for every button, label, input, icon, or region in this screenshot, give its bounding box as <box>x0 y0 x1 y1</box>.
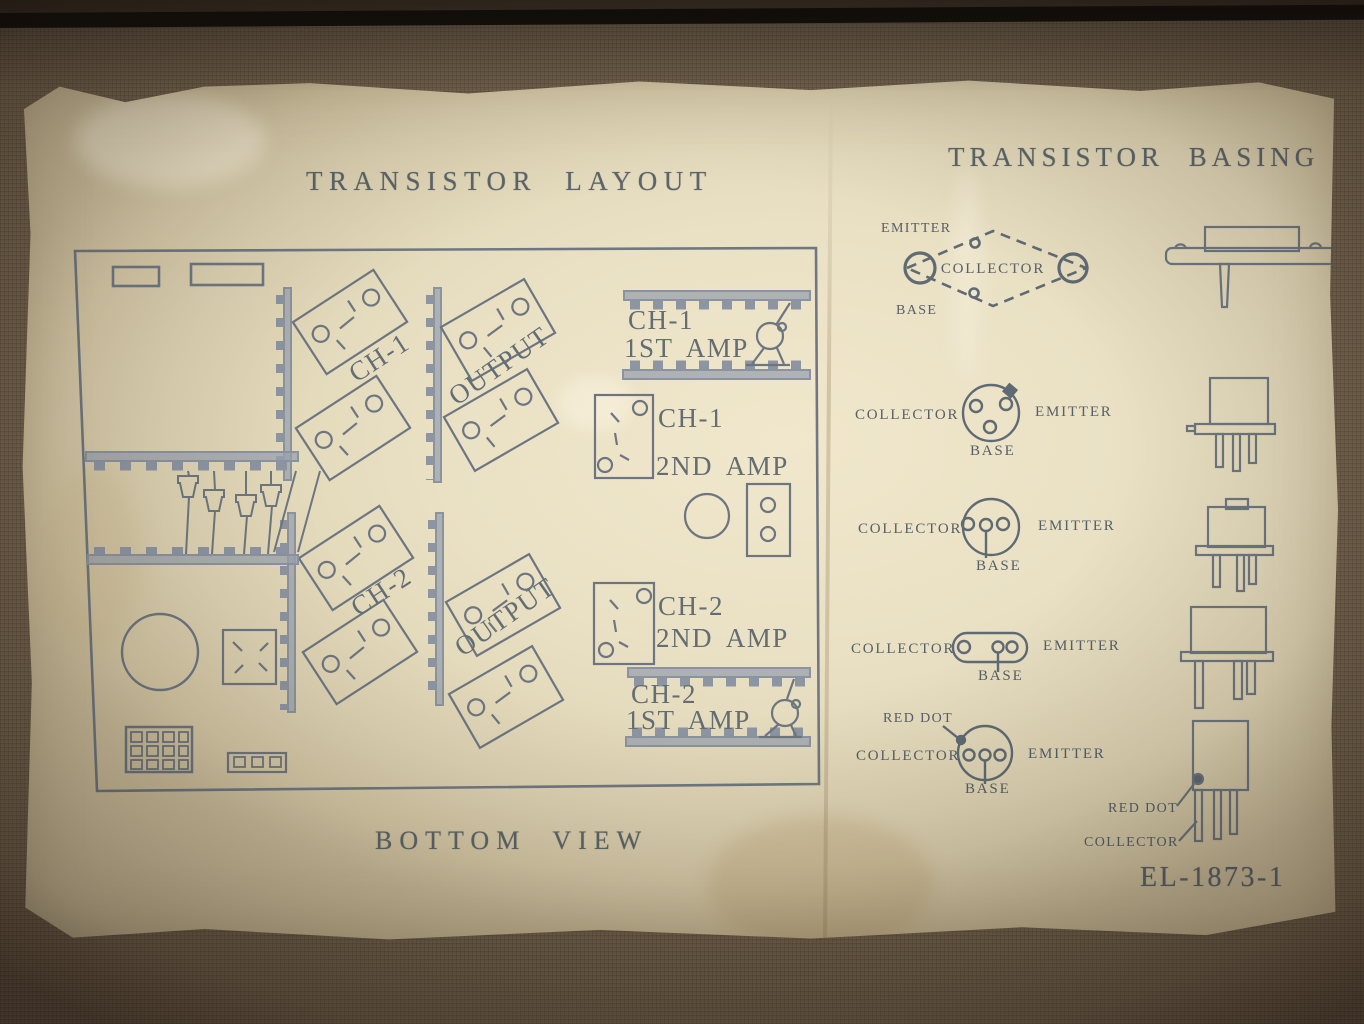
side-view-can-flange <box>1187 378 1275 471</box>
label-ch1-2nd-line2: 2ND AMP <box>656 451 789 481</box>
ch1-1st-amp-transistor <box>746 303 790 365</box>
basing-oval-case <box>953 633 1027 672</box>
label-collector: COLLECTOR <box>855 407 959 423</box>
side-view-can-top-tab <box>1196 499 1273 591</box>
label-base: BASE <box>965 781 1011 797</box>
label-collector: COLLECTOR <box>941 261 1045 277</box>
side-view-power-case <box>1166 227 1336 307</box>
label-collector: COLLECTOR <box>858 521 962 537</box>
basing-round-inline-case <box>962 499 1019 558</box>
paper-stain <box>75 93 265 188</box>
component-strip-lower <box>88 551 298 564</box>
three-hole-strip <box>228 753 286 772</box>
label-red-dot: RED DOT <box>1108 801 1178 816</box>
hole <box>685 494 729 538</box>
paper-stain <box>708 816 933 951</box>
bottom-view-label: BOTTOM VIEW <box>375 826 648 856</box>
transistor-layout-diagram: CH-1 OUTPUT CH-2 OUTPUT <box>68 243 828 799</box>
basing-round-tab-case <box>963 384 1019 441</box>
label-base: BASE <box>896 303 937 318</box>
label-ch1-1st-line2: 1ST AMP <box>624 333 749 363</box>
two-hole-bracket <box>747 484 790 556</box>
side-view-wide-can <box>1181 607 1273 708</box>
label-red-dot: RED DOT <box>883 711 953 726</box>
label-ch2: CH-2 <box>345 561 417 622</box>
red-dot-mark <box>1193 774 1203 784</box>
ch2-2nd-amp-socket <box>594 583 654 664</box>
label-base: BASE <box>976 558 1022 574</box>
label-collector: COLLECTOR <box>856 748 960 764</box>
ch1-2nd-amp-socket <box>595 395 653 478</box>
label-ch2-2nd-line2: 2ND AMP <box>656 623 789 653</box>
basing-title: TRANSISTOR BASING <box>948 142 1319 173</box>
label-emitter: EMITTER <box>881 221 951 236</box>
label-output-top: OUTPUT <box>443 320 555 411</box>
label-base: BASE <box>970 443 1016 459</box>
transistor-side-views: RED DOT COLLECTOR <box>1058 215 1358 905</box>
round-can <box>122 614 198 690</box>
label-collector: COLLECTOR <box>851 641 955 657</box>
label-collector: COLLECTOR <box>1084 835 1179 850</box>
label-base: BASE <box>978 668 1024 684</box>
component-strip-upper <box>86 452 298 466</box>
label-ch2-2nd-line1: CH-2 <box>658 591 724 621</box>
label-ch2-1st-line2: 1ST AMP <box>626 705 751 735</box>
capacitors <box>178 471 320 554</box>
side-view-red-dot-case <box>1177 721 1248 841</box>
square-socket <box>223 630 276 684</box>
layout-title: TRANSISTOR LAYOUT <box>306 166 713 197</box>
label-ch1-1st-line1: CH-1 <box>628 305 694 335</box>
grid-connector <box>126 727 192 772</box>
paper-sheet: TRANSISTOR LAYOUT TRANSISTOR BASING BOTT… <box>20 78 1338 942</box>
photo-scene: TRANSISTOR LAYOUT TRANSISTOR BASING BOTT… <box>0 0 1364 1024</box>
label-ch1-2nd-line1: CH-1 <box>658 403 724 433</box>
